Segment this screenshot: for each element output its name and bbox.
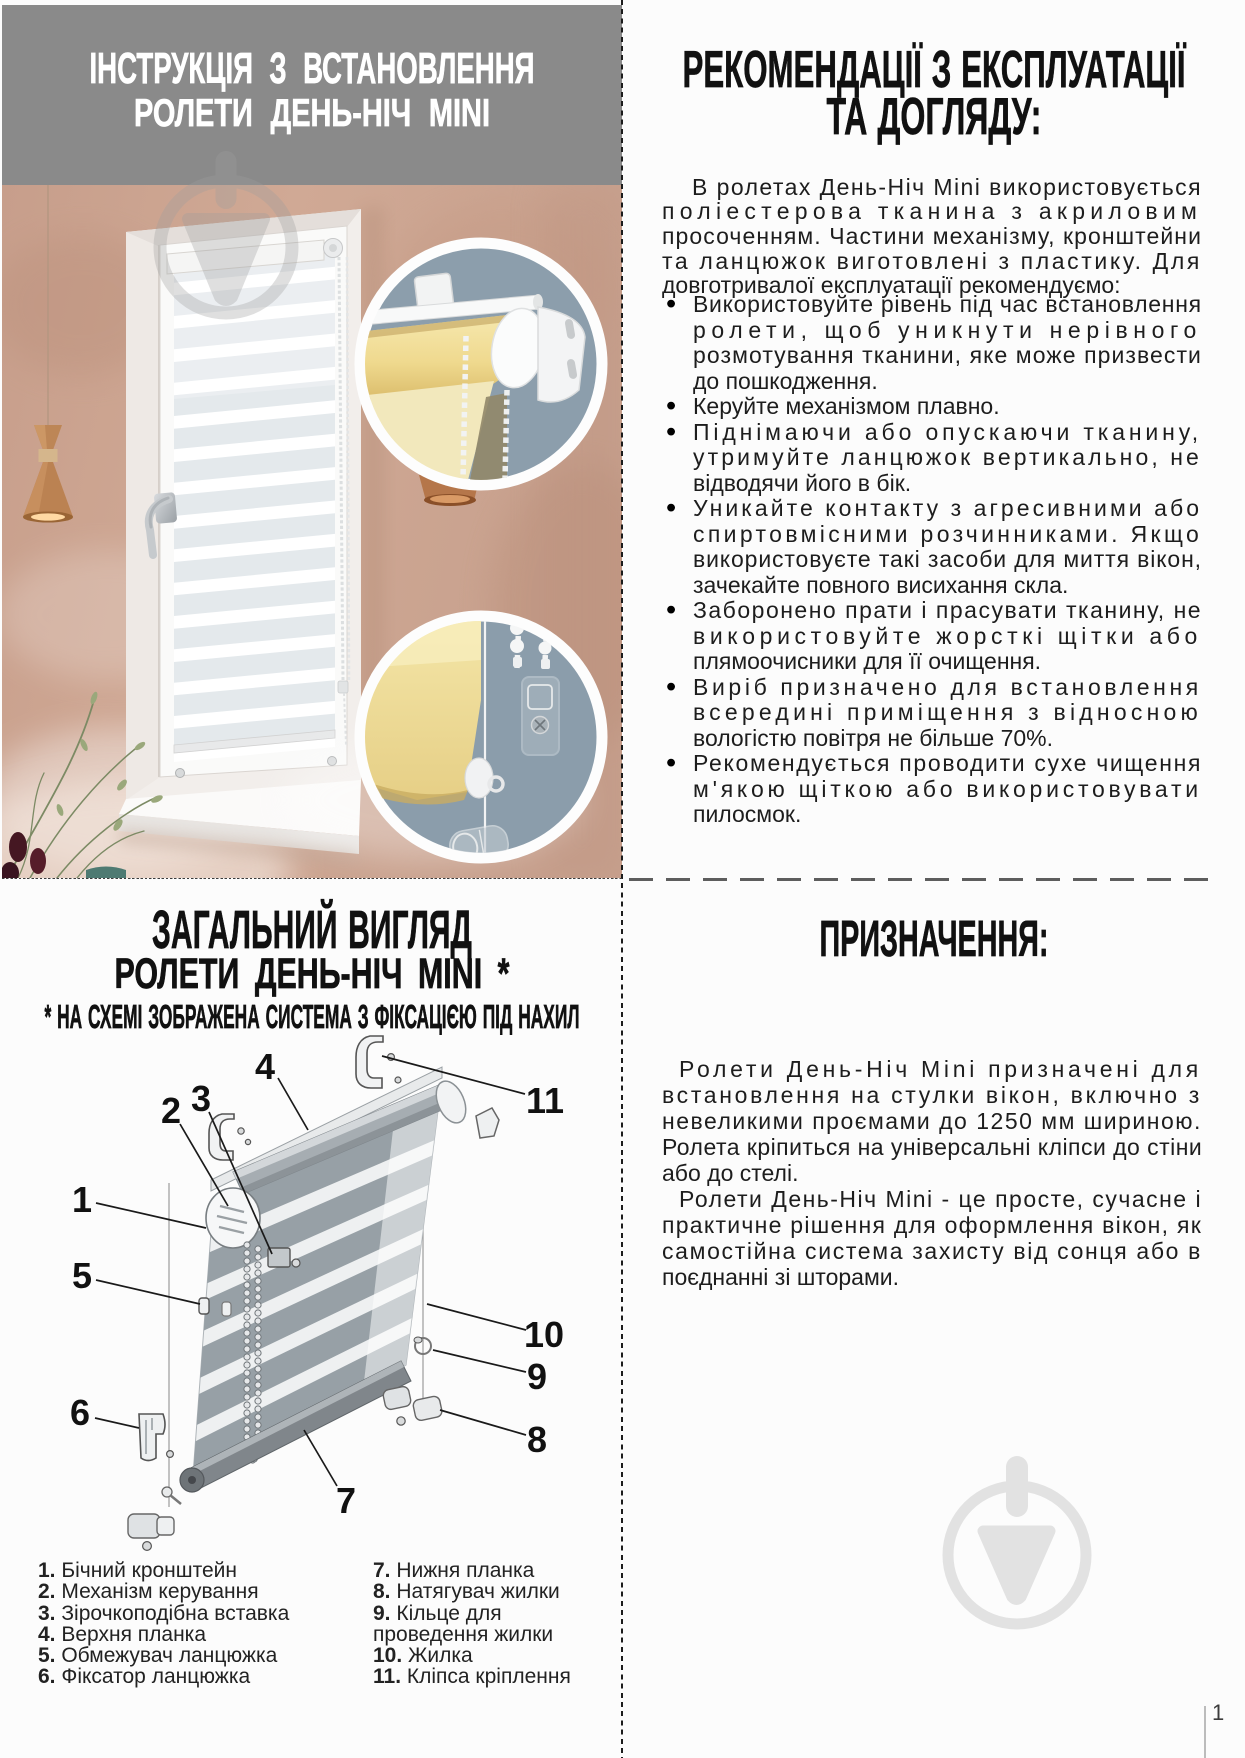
svg-text:7: 7 [336,1480,356,1521]
svg-text:5: 5 [72,1255,92,1296]
svg-text:8: 8 [527,1419,547,1460]
svg-text:10: 10 [524,1314,564,1355]
svg-text:11: 11 [526,1080,564,1121]
svg-text:6: 6 [70,1392,90,1433]
svg-text:9: 9 [527,1356,547,1397]
svg-text:3: 3 [191,1078,211,1119]
svg-text:2: 2 [161,1090,181,1131]
svg-text:4: 4 [255,1046,275,1087]
svg-text:1: 1 [72,1179,92,1220]
